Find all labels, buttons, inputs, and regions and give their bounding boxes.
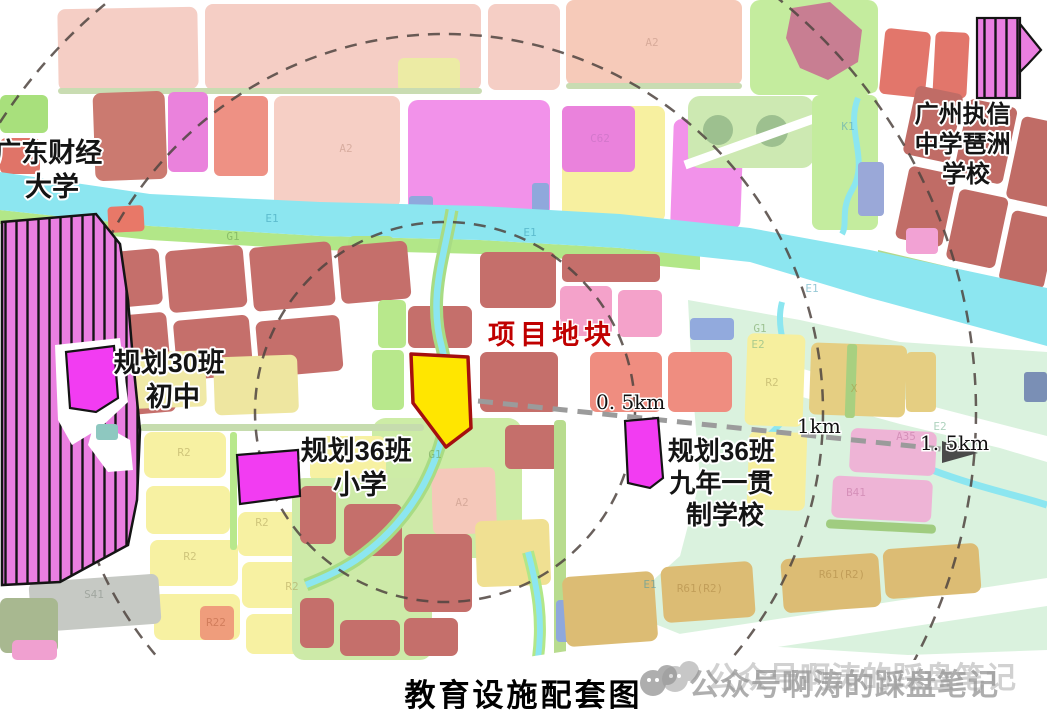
zone-code: A2 xyxy=(455,496,468,509)
junior30-site-2 xyxy=(237,450,300,504)
zone-code: E1 xyxy=(265,212,278,225)
zone-code: G1 xyxy=(753,322,766,335)
zone-code: X xyxy=(851,382,858,395)
zone-code: R22 xyxy=(206,616,226,629)
zone-code: G1 xyxy=(226,230,239,243)
zone-code: E2 xyxy=(751,338,764,351)
zone-code: B41 xyxy=(846,486,866,499)
zone-code: R61(R2) xyxy=(677,582,723,595)
zone-code: R61(R2) xyxy=(819,568,865,581)
zone-code: R2 xyxy=(765,376,778,389)
zone-code: C62 xyxy=(590,132,610,145)
zone-code: E1 xyxy=(643,578,656,591)
zone-code: R2 xyxy=(177,446,190,459)
label-project-plot: 项目地块 xyxy=(488,320,616,350)
zone-code: A2 xyxy=(339,142,352,155)
zone-code: S41 xyxy=(84,588,104,601)
zone-code: E1 xyxy=(805,282,818,295)
planning-map: E1E1E1E1G1G1G1K1A2A2A2C62R2R2R2R2R2XE2E2… xyxy=(0,0,1047,660)
zone-code: K1 xyxy=(841,120,854,133)
screenshot-root: E1E1E1E1G1G1G1K1A2A2A2C62R2R2R2R2R2XE2E2… xyxy=(0,0,1047,721)
junior30-site xyxy=(66,346,118,412)
watermark: 公众号啊涛的踩盘笔记 公众号啊涛的踩盘笔记 xyxy=(627,655,1047,716)
zone-code: G1 xyxy=(428,448,441,461)
zone-code: R2 xyxy=(285,580,298,593)
zone-code: A2 xyxy=(645,36,658,49)
zone-code: R2 xyxy=(183,550,196,563)
zone-code: R2 xyxy=(255,516,268,529)
label-1km: 1km xyxy=(797,414,841,438)
label-15km: 1. 5km xyxy=(920,431,989,455)
zone-code: E1 xyxy=(523,226,536,239)
nineyear36-site xyxy=(625,418,663,488)
watermark-text-echo: 公众号啊涛的踩盘笔记 xyxy=(707,661,1017,695)
zone-code: A35 xyxy=(896,430,916,443)
label-05km: 0. 5km xyxy=(596,390,665,414)
